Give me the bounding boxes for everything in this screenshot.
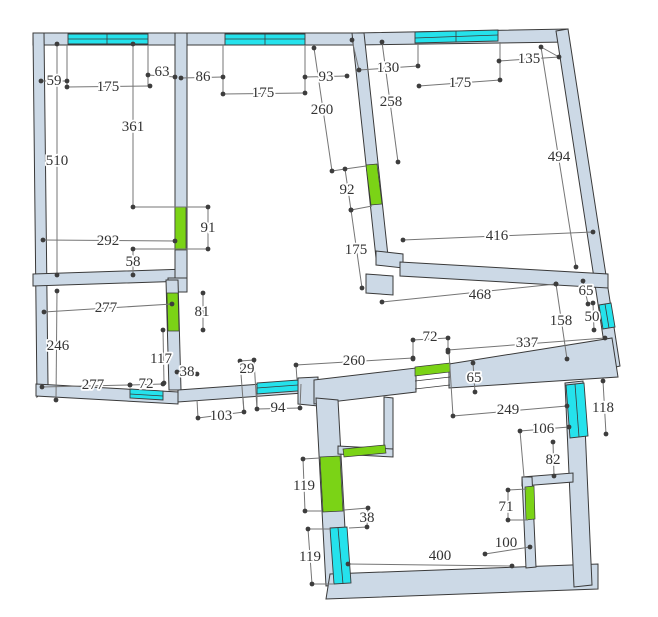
dimension-dot-1-0 bbox=[65, 85, 70, 90]
dimension-dot-34-1 bbox=[161, 382, 166, 387]
dimension-dot-18-0 bbox=[539, 45, 544, 50]
dimension-dot-46-1 bbox=[567, 425, 572, 430]
dimension-dot-36-1 bbox=[170, 302, 175, 307]
dimension-dot-0-0 bbox=[39, 79, 44, 84]
dimension-dot-24-0 bbox=[411, 338, 416, 343]
dimension-dot-41-1 bbox=[310, 582, 315, 587]
dimension-label-27: 65 bbox=[467, 370, 482, 386]
threshold-layer bbox=[415, 377, 450, 389]
dim-connector-18 bbox=[520, 431, 524, 477]
dimension-dot-18-1 bbox=[574, 265, 579, 270]
dimension-dot-17-0 bbox=[380, 40, 385, 45]
dimension-dot-24-1 bbox=[446, 336, 451, 341]
dimension-dot-7-1 bbox=[206, 247, 211, 252]
dimension-label-20: 468 bbox=[469, 287, 492, 303]
dimension-dot-28-1 bbox=[565, 404, 570, 409]
dimension-dot-7-0 bbox=[206, 205, 211, 210]
dimension-dot-33-0 bbox=[161, 328, 166, 333]
dimension-dot-44-0 bbox=[506, 488, 511, 493]
dimension-label-3: 86 bbox=[196, 69, 212, 85]
dimension-label-23: 50 bbox=[585, 309, 600, 325]
dimension-label-24: 72 bbox=[423, 329, 438, 345]
dimension-dot-6-0 bbox=[41, 238, 46, 243]
extra-dot-0 bbox=[350, 38, 355, 43]
dimension-label-30: 94 bbox=[271, 400, 287, 416]
dimension-dot-47-0 bbox=[601, 379, 606, 384]
dimension-label-25: 337 bbox=[516, 335, 539, 351]
dimension-dot-16-1 bbox=[557, 55, 562, 60]
dimension-label-16: 135 bbox=[518, 51, 541, 67]
dimension-dot-19-0 bbox=[401, 238, 406, 243]
dimension-label-0: 59 bbox=[47, 73, 62, 89]
dimension-label-2: 63 bbox=[155, 64, 170, 80]
dimension-label-7: 91 bbox=[201, 220, 216, 236]
dimension-label-5: 510 bbox=[46, 153, 69, 169]
hall-south-wall-left bbox=[314, 368, 416, 404]
dimension-dot-47-1 bbox=[604, 432, 609, 437]
doors-layer bbox=[167, 164, 535, 520]
dimension-label-1: 175 bbox=[97, 79, 120, 95]
topright-wall-step bbox=[376, 251, 403, 268]
dimension-label-36: 277 bbox=[95, 300, 118, 316]
dimension-dot-9-1 bbox=[303, 91, 308, 96]
dimension-label-13: 175 bbox=[345, 242, 368, 258]
dimension-dot-27-1 bbox=[473, 390, 478, 395]
dimension-dot-30-0 bbox=[255, 407, 260, 412]
dimension-dot-19-1 bbox=[591, 230, 596, 235]
dimension-dot-43-0 bbox=[483, 552, 488, 557]
dimension-label-40: 38 bbox=[360, 510, 375, 526]
dimension-label-35: 277 bbox=[82, 377, 105, 393]
dimension-label-37: 246 bbox=[47, 338, 70, 354]
dimension-dot-23-1 bbox=[592, 328, 597, 333]
dimension-label-28: 249 bbox=[497, 402, 520, 418]
dimension-label-12: 92 bbox=[340, 182, 355, 198]
dimension-label-18: 494 bbox=[548, 149, 571, 165]
dimension-dot-11-0 bbox=[312, 46, 317, 51]
dimension-label-21: 65 bbox=[579, 283, 594, 299]
dimension-dot-16-0 bbox=[497, 59, 502, 64]
dimension-dot-8-0 bbox=[131, 247, 136, 252]
dimension-dot-45-0 bbox=[551, 440, 556, 445]
dimension-dot-11-1 bbox=[330, 169, 335, 174]
dimension-dot-5-0 bbox=[55, 42, 60, 47]
dimension-dot-15-0 bbox=[417, 84, 422, 89]
dimension-dot-3-0 bbox=[179, 76, 184, 81]
dimension-label-4: 361 bbox=[122, 119, 145, 135]
dimension-dot-35-1 bbox=[128, 383, 133, 388]
dimension-dot-46-0 bbox=[518, 429, 523, 434]
door-71 bbox=[525, 486, 535, 520]
dim-connector-27 bbox=[197, 400, 198, 418]
dimension-dot-43-1 bbox=[528, 545, 533, 550]
dim-connector-19 bbox=[303, 458, 320, 459]
dimension-dot-13-0 bbox=[349, 208, 354, 213]
dimension-dot-2-0 bbox=[146, 73, 151, 78]
dimension-label-26: 260 bbox=[343, 353, 366, 369]
dimension-dot-37-0 bbox=[55, 289, 60, 294]
dimension-dot-41-0 bbox=[306, 527, 311, 532]
dimension-dot-5-1 bbox=[55, 273, 60, 278]
dimension-label-45: 82 bbox=[546, 452, 561, 468]
dimension-dot-22-1 bbox=[565, 357, 570, 362]
door-81 bbox=[167, 293, 179, 331]
dimension-dot-13-1 bbox=[360, 286, 365, 291]
dimension-label-8: 58 bbox=[126, 254, 141, 270]
dimension-label-19: 416 bbox=[486, 228, 509, 244]
door-65-leaf bbox=[415, 363, 450, 376]
dimension-dot-36-0 bbox=[42, 310, 47, 315]
dimension-dot-10-1 bbox=[345, 74, 350, 79]
dimension-dot-38-1 bbox=[201, 328, 206, 333]
dimension-label-46: 106 bbox=[532, 421, 555, 437]
dimension-dot-14-1 bbox=[416, 64, 421, 69]
dimension-label-6: 292 bbox=[97, 233, 120, 249]
dim-connector-22 bbox=[349, 527, 367, 528]
topleft-room-bottom-wall bbox=[33, 269, 187, 286]
door-threshold-line-0 bbox=[415, 377, 450, 381]
window-south-94 bbox=[257, 380, 298, 394]
dimension-label-44: 71 bbox=[499, 499, 514, 515]
dimension-label-47: 118 bbox=[592, 400, 614, 416]
door-threshold-line-1 bbox=[415, 385, 450, 389]
dimension-dot-20-0 bbox=[380, 300, 385, 305]
extra-dot-1 bbox=[411, 357, 416, 362]
dimension-dot-1-1 bbox=[148, 84, 153, 89]
dimension-dot-45-1 bbox=[552, 474, 557, 479]
dimension-label-10: 93 bbox=[319, 69, 334, 85]
dimension-dot-2-1 bbox=[173, 75, 178, 80]
door-91 bbox=[175, 207, 186, 250]
dimension-label-33: 117 bbox=[150, 351, 172, 367]
bottomroom-bottom-wall bbox=[326, 564, 598, 599]
dimension-label-43: 100 bbox=[495, 535, 518, 551]
dimension-label-32: 38 bbox=[180, 364, 195, 380]
dimension-dot-38-0 bbox=[201, 291, 206, 296]
dim-connector-10 bbox=[351, 206, 372, 210]
dimension-dot-23-0 bbox=[591, 301, 596, 306]
dimension-dot-39-1 bbox=[303, 509, 308, 514]
dim-connector-9 bbox=[345, 166, 366, 169]
dimension-dot-44-1 bbox=[506, 518, 511, 523]
extra-dot-2 bbox=[446, 350, 451, 355]
dimension-dot-22-0 bbox=[554, 282, 559, 287]
dimension-dot-29-1 bbox=[242, 410, 247, 415]
dimension-label-31: 29 bbox=[240, 361, 255, 377]
dim-connector-16 bbox=[541, 47, 559, 57]
dimension-label-38: 81 bbox=[195, 304, 210, 320]
dimension-dot-8-1 bbox=[131, 273, 136, 278]
dimension-label-17: 258 bbox=[380, 94, 403, 110]
dimension-dot-0-1 bbox=[65, 79, 70, 84]
dimension-dot-14-0 bbox=[357, 68, 362, 73]
dimension-label-34: 72 bbox=[139, 376, 154, 392]
dimension-dot-37-1 bbox=[54, 398, 59, 403]
dimension-dot-9-0 bbox=[221, 92, 226, 97]
dimension-label-41: 119 bbox=[299, 549, 321, 565]
dimension-dot-35-0 bbox=[40, 385, 45, 390]
dimension-label-14: 130 bbox=[377, 60, 400, 76]
door-119 bbox=[320, 456, 343, 512]
dimension-label-22: 158 bbox=[550, 313, 573, 329]
door-92 bbox=[366, 164, 382, 205]
dimension-dot-28-0 bbox=[451, 414, 456, 419]
dimension-dot-26-0 bbox=[294, 363, 299, 368]
dimension-dot-39-0 bbox=[301, 457, 306, 462]
dimension-dot-29-0 bbox=[196, 416, 201, 421]
dimension-label-42: 400 bbox=[429, 548, 452, 564]
dimension-dot-4-1 bbox=[131, 205, 136, 210]
dimension-dot-25-1 bbox=[603, 336, 608, 341]
dimension-dot-4-0 bbox=[131, 42, 136, 47]
dimension-line-42 bbox=[348, 564, 512, 566]
dimension-dot-17-1 bbox=[396, 160, 401, 165]
floor-plan-page: 5917563863615102929158175932609217513017… bbox=[0, 0, 658, 617]
dimension-dot-3-1 bbox=[221, 75, 226, 80]
dimension-dot-12-0 bbox=[343, 167, 348, 172]
dimension-dot-42-1 bbox=[510, 564, 515, 569]
dimension-dot-27-0 bbox=[471, 361, 476, 366]
closet-right-wall bbox=[384, 397, 393, 453]
dimension-dot-21-1 bbox=[586, 302, 591, 307]
dimension-label-15: 175 bbox=[449, 75, 472, 91]
dimension-dot-30-1 bbox=[298, 406, 303, 411]
dimension-dot-10-0 bbox=[303, 75, 308, 80]
topright-wall-foot bbox=[366, 274, 393, 295]
dimension-label-39: 119 bbox=[293, 478, 315, 494]
floor-plan-svg: 5917563863615102929158175932609217513017… bbox=[0, 0, 658, 617]
dimension-dot-32-1 bbox=[195, 372, 200, 377]
dimension-label-9: 175 bbox=[252, 85, 275, 101]
dimension-label-29: 103 bbox=[210, 408, 233, 424]
dimension-dot-42-0 bbox=[346, 562, 351, 567]
dimension-dot-15-1 bbox=[498, 78, 503, 83]
dimension-dot-6-1 bbox=[173, 239, 178, 244]
dimension-label-11: 260 bbox=[311, 102, 334, 118]
